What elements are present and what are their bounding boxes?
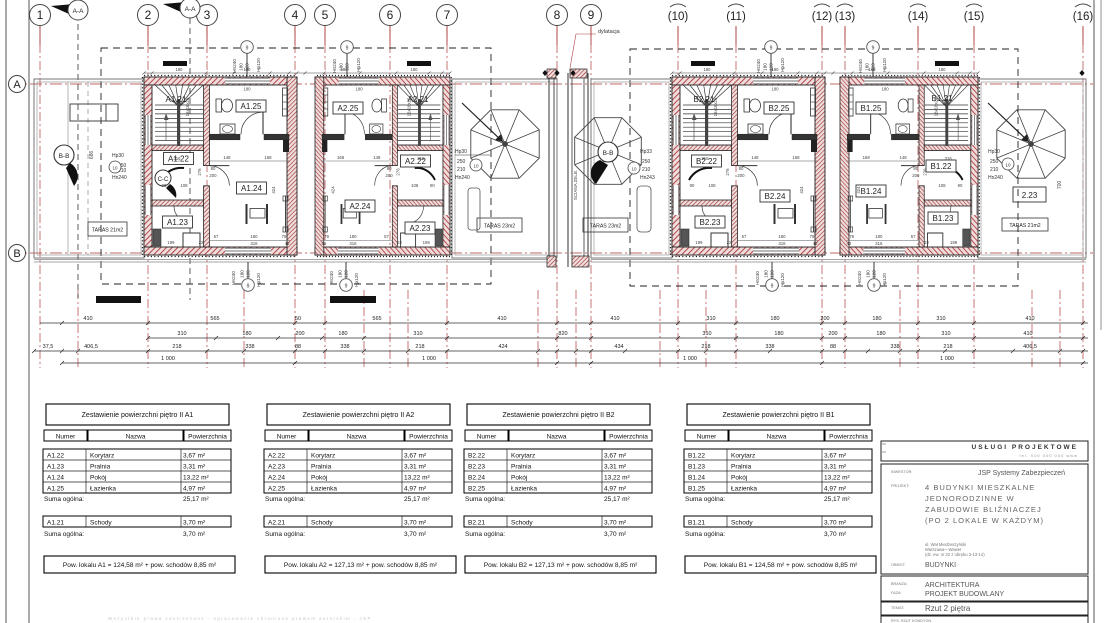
svg-text:180: 180 (338, 331, 347, 337)
svg-text:A1.22: A1.22 (47, 453, 64, 460)
svg-text:A1.24: A1.24 (47, 475, 64, 482)
svg-text:120: 120 (770, 270, 775, 278)
svg-text:Hp30: Hp30 (988, 149, 1000, 155)
svg-text:180: 180 (876, 331, 885, 337)
svg-text:42: 42 (321, 241, 326, 246)
svg-text:Numer: Numer (277, 434, 297, 441)
svg-text:50: 50 (295, 316, 301, 322)
svg-text:316: 316 (778, 241, 786, 246)
svg-text:(15): (15) (964, 11, 985, 23)
svg-text:Hp120: Hp120 (882, 58, 887, 72)
svg-text:B1.25: B1.25 (688, 486, 705, 493)
svg-text:A2.24: A2.24 (350, 202, 371, 211)
svg-text:88: 88 (295, 344, 301, 350)
svg-text:Nazwa: Nazwa (347, 434, 367, 441)
svg-text:(14): (14) (908, 11, 929, 23)
svg-text:Suma ogólna:: Suma ogólna: (265, 531, 305, 538)
svg-text:22: 22 (199, 240, 204, 245)
svg-text:180: 180 (240, 270, 245, 278)
svg-text:Pralnia: Pralnia (511, 464, 532, 471)
svg-text:Łazienka: Łazienka (511, 486, 537, 493)
svg-text:13,22 m²: 13,22 m² (404, 475, 430, 482)
svg-text:Hn240: Hn240 (455, 175, 470, 181)
svg-text:406,5: 406,5 (1023, 344, 1037, 350)
svg-text:210: 210 (457, 167, 466, 173)
svg-text:Suma ogólna:: Suma ogólna: (265, 496, 305, 503)
svg-text:Pow. lokalu B1 = 124,58 m² + p: Pow. lokalu B1 = 124,58 m² + pow. schodó… (704, 562, 858, 569)
svg-text:218: 218 (701, 344, 710, 350)
svg-text:Hn240: Hn240 (332, 59, 337, 73)
svg-text:180: 180 (866, 270, 871, 278)
svg-text:410: 410 (1023, 331, 1032, 337)
svg-text:A-A: A-A (185, 6, 197, 13)
svg-text:Hn240: Hn240 (112, 175, 127, 181)
svg-text:ARCHITEKTURA: ARCHITEKTURA (925, 582, 980, 589)
svg-text:120: 120 (872, 270, 877, 278)
svg-text:316: 316 (250, 241, 258, 246)
svg-text:Wszystkie prawa zastrzezone -: Wszystkie prawa zastrzezone - opracowani… (108, 616, 372, 621)
svg-text:Pokój: Pokój (511, 475, 527, 482)
svg-text:180: 180 (704, 67, 712, 72)
svg-text:9: 9 (246, 46, 249, 52)
svg-text:SCIANA ZELB.: SCIANA ZELB. (573, 170, 578, 200)
svg-text:3,67 m²: 3,67 m² (183, 453, 206, 460)
svg-text:57: 57 (214, 234, 219, 239)
svg-text:B2.25: B2.25 (468, 486, 485, 493)
svg-text:3,70 m²: 3,70 m² (183, 531, 206, 538)
svg-text:180: 180 (341, 67, 349, 72)
svg-text:316: 316 (875, 241, 883, 246)
svg-text:Powierzchnia: Powierzchnia (409, 434, 448, 441)
svg-text:TEMAT:: TEMAT: (891, 606, 904, 610)
svg-text:2.23: 2.23 (1022, 191, 1038, 200)
svg-text:Hp120: Hp120 (256, 58, 261, 72)
svg-text:ZABUDOWIE BLIŹNIACZEJ: ZABUDOWIE BLIŹNIACZEJ (925, 505, 1042, 514)
svg-text:316: 316 (417, 156, 425, 161)
svg-text:4 BUDYNKI MIESZKALNE: 4 BUDYNKI MIESZKALNE (925, 483, 1035, 492)
svg-text:TARAS 23m2: TARAS 23m2 (590, 224, 621, 230)
svg-text:Hn240: Hn240 (329, 271, 334, 285)
svg-text:148: 148 (223, 155, 231, 160)
svg-text:424: 424 (271, 186, 276, 194)
svg-text:7: 7 (444, 8, 451, 22)
svg-text:USŁUGI PROJEKTOWE: USŁUGI PROJEKTOWE (972, 444, 1078, 451)
svg-text:3,70 m²: 3,70 m² (404, 531, 427, 538)
svg-text:4,97 m²: 4,97 m² (404, 486, 427, 493)
svg-text:3,67 m²: 3,67 m² (604, 453, 627, 460)
svg-text:108: 108 (938, 183, 946, 188)
svg-text:310: 310 (941, 331, 950, 337)
svg-text:180: 180 (356, 87, 364, 92)
svg-text:3,31 m²: 3,31 m² (604, 464, 627, 471)
svg-text:Korytarz: Korytarz (311, 453, 335, 460)
svg-text:4: 4 (292, 8, 299, 22)
svg-text:A2.24: A2.24 (268, 475, 285, 482)
svg-text:180: 180 (338, 270, 343, 278)
svg-text:180: 180 (771, 87, 779, 92)
svg-text:Suma ogólna:: Suma ogólna: (685, 531, 725, 538)
svg-text:700: 700 (1057, 181, 1063, 190)
svg-text:3,70 m²: 3,70 m² (604, 531, 627, 538)
svg-text:A2.23: A2.23 (410, 224, 431, 233)
svg-text:13,22 m²: 13,22 m² (604, 475, 630, 482)
svg-text:A: A (13, 79, 21, 91)
svg-text:Schody: Schody (731, 520, 753, 527)
svg-text:B1.25: B1.25 (861, 104, 882, 113)
svg-text:Łazienka: Łazienka (90, 486, 116, 493)
svg-text:Rzut 2 piętra: Rzut 2 piętra (925, 604, 971, 613)
svg-text:INWESTOR:: INWESTOR: (891, 470, 912, 474)
svg-text:(13): (13) (835, 11, 856, 23)
svg-text:5: 5 (322, 8, 329, 22)
svg-text:JEDNORODZINNE W: JEDNORODZINNE W (925, 494, 1015, 503)
svg-text:200: 200 (209, 173, 217, 178)
svg-text:88: 88 (830, 344, 836, 350)
svg-text:424: 424 (856, 186, 861, 194)
svg-text:Pokój: Pokój (311, 475, 327, 482)
svg-text:A1.23: A1.23 (167, 218, 188, 227)
svg-text:410: 410 (610, 316, 619, 322)
svg-text:Numer: Numer (477, 434, 497, 441)
svg-text:B: B (13, 248, 20, 260)
svg-text:A1.25: A1.25 (241, 102, 262, 111)
svg-text:Hp120: Hp120 (882, 273, 887, 287)
svg-text:Hn240: Hn240 (857, 271, 862, 285)
svg-text:Hp120: Hp120 (780, 273, 785, 287)
svg-text:9: 9 (771, 284, 774, 290)
svg-text:90: 90 (690, 183, 695, 188)
svg-text:Pralnia: Pralnia (90, 464, 111, 471)
svg-text:Zestawienie powierzchni piętro: Zestawienie powierzchni piętro II A2 (303, 412, 415, 419)
svg-text:B1.21: B1.21 (688, 520, 705, 527)
svg-text:316: 316 (173, 156, 181, 161)
svg-text:B1.23: B1.23 (688, 464, 705, 471)
svg-text:316: 316 (349, 241, 357, 246)
svg-text:9: 9 (873, 284, 876, 290)
svg-text:3,31 m²: 3,31 m² (404, 464, 427, 471)
svg-text:108: 108 (411, 183, 419, 188)
svg-text:B2.25: B2.25 (769, 104, 790, 113)
svg-text:Suma ogólna:: Suma ogólna: (465, 496, 505, 503)
svg-text:200: 200 (386, 173, 394, 178)
svg-text:180: 180 (763, 63, 768, 71)
svg-text:199: 199 (167, 240, 175, 245)
svg-text:Hn240: Hn240 (231, 271, 236, 285)
svg-text:25,17 m²: 25,17 m² (824, 496, 850, 503)
svg-text:13,22 m²: 13,22 m² (824, 475, 850, 482)
svg-text:338: 338 (765, 344, 774, 350)
svg-text:3,31 m²: 3,31 m² (183, 464, 206, 471)
svg-text:TARAS 21m2: TARAS 21m2 (92, 228, 123, 234)
svg-text:79: 79 (324, 234, 329, 239)
svg-text:90: 90 (162, 183, 167, 188)
svg-text:210: 210 (990, 167, 999, 173)
svg-text:686: 686 (89, 151, 95, 160)
svg-text:4,97 m²: 4,97 m² (824, 486, 847, 493)
svg-text:B1.24: B1.24 (688, 475, 705, 482)
svg-text:1 000: 1 000 (940, 356, 954, 362)
svg-text:200: 200 (737, 173, 745, 178)
svg-text:B1.22: B1.22 (688, 453, 705, 460)
svg-text:10: 10 (631, 167, 637, 172)
svg-text:A2.23: A2.23 (268, 464, 285, 471)
svg-text:4,97 m²: 4,97 m² (604, 486, 627, 493)
svg-text:42: 42 (813, 241, 818, 246)
svg-text:(12): (12) (812, 11, 833, 23)
svg-text:A1.25: A1.25 (47, 486, 64, 493)
svg-text:218: 218 (943, 344, 952, 350)
svg-text:316: 316 (945, 156, 953, 161)
svg-text:210: 210 (642, 167, 651, 173)
svg-text:Hp120: Hp120 (256, 273, 261, 287)
svg-text:199: 199 (423, 240, 431, 245)
svg-text:338: 338 (890, 344, 899, 350)
svg-text:180: 180 (875, 234, 883, 239)
svg-text:200: 200 (820, 316, 829, 322)
svg-text:BUDYNKI: BUDYNKI (925, 562, 956, 569)
svg-text:79: 79 (282, 234, 287, 239)
svg-text:9: 9 (346, 46, 349, 52)
svg-text:B-B: B-B (59, 153, 70, 160)
svg-text:90: 90 (958, 183, 963, 188)
svg-text:42: 42 (285, 241, 290, 246)
svg-text:Numer: Numer (56, 434, 76, 441)
svg-text:9: 9 (345, 284, 348, 290)
svg-text:16x18x25: 16x18x25 (185, 97, 190, 116)
svg-text:410: 410 (83, 316, 92, 322)
svg-text:Suma ogólna:: Suma ogólna: (685, 496, 725, 503)
svg-text:Nazwa: Nazwa (126, 434, 146, 441)
svg-text:310: 310 (177, 331, 186, 337)
svg-text:9: 9 (247, 284, 250, 290)
svg-text:Zestawienie powierzchni piętro: Zestawienie powierzchni piętro II B2 (502, 412, 614, 419)
svg-text:Hp30: Hp30 (112, 153, 124, 159)
svg-text:tel. 000 000 000 www: tel. 000 000 000 www (1020, 453, 1078, 458)
svg-text:B1.24: B1.24 (861, 187, 882, 196)
svg-text:79: 79 (810, 234, 815, 239)
svg-text:Hn240: Hn240 (988, 175, 1003, 181)
svg-text:(11): (11) (726, 11, 746, 23)
svg-text:168: 168 (792, 155, 800, 160)
svg-text:148: 148 (751, 155, 759, 160)
svg-text:565: 565 (372, 316, 381, 322)
svg-text:B2.23: B2.23 (700, 218, 721, 227)
svg-text:Hn240: Hn240 (756, 59, 761, 73)
svg-text:Nazwa: Nazwa (767, 434, 787, 441)
svg-text:424: 424 (799, 186, 804, 194)
svg-text:168: 168 (264, 155, 272, 160)
svg-text:(10): (10) (668, 11, 689, 23)
svg-text:1 000: 1 000 (683, 356, 697, 362)
svg-text:A1.24: A1.24 (241, 184, 262, 193)
svg-text:4,97 m²: 4,97 m² (183, 486, 206, 493)
svg-text:180: 180 (242, 331, 251, 337)
svg-text:180: 180 (250, 234, 258, 239)
svg-text:Pow. lokalu A2 = 127,13 m² + p: Pow. lokalu A2 = 127,13 m² + pow. schodó… (284, 562, 438, 569)
svg-text:10: 10 (1005, 163, 1011, 168)
svg-text:310: 310 (702, 331, 711, 337)
svg-text:B1.22: B1.22 (931, 162, 952, 171)
svg-text:37,5: 37,5 (43, 344, 54, 350)
svg-text:410: 410 (497, 316, 506, 322)
svg-text:6: 6 (387, 8, 394, 22)
svg-text:310: 310 (706, 316, 715, 322)
svg-text:3,70 m²: 3,70 m² (183, 520, 206, 527)
svg-text:B1.23: B1.23 (933, 214, 954, 223)
svg-text:250: 250 (990, 159, 999, 165)
svg-text:338: 338 (245, 344, 254, 350)
svg-text:180: 180 (774, 331, 783, 337)
svg-text:Powierzchnia: Powierzchnia (829, 434, 868, 441)
svg-text:Łazienka: Łazienka (731, 486, 757, 493)
svg-text:9: 9 (588, 8, 595, 22)
svg-text:Hp120: Hp120 (780, 58, 785, 72)
svg-text:80: 80 (739, 166, 744, 171)
svg-text:434: 434 (614, 344, 623, 350)
svg-text:Hn240: Hn240 (755, 271, 760, 285)
svg-text:Hn243: Hn243 (640, 175, 655, 181)
svg-text:200: 200 (828, 331, 837, 337)
svg-text:16x18x25: 16x18x25 (933, 97, 938, 116)
svg-text:316: 316 (701, 156, 709, 161)
svg-text:Powierzchnia: Powierzchnia (609, 434, 648, 441)
svg-text:Korytarz: Korytarz (90, 453, 114, 460)
svg-text:A1.21: A1.21 (166, 95, 187, 104)
svg-text:1: 1 (37, 8, 44, 22)
svg-text:Hp33: Hp33 (640, 149, 652, 155)
svg-text:PROJEKT BUDOWLANY: PROJEKT BUDOWLANY (925, 591, 1005, 598)
svg-text:276: 276 (197, 168, 202, 176)
svg-text:180: 180 (349, 234, 357, 239)
svg-text:108: 108 (180, 183, 188, 188)
svg-text:Hn240: Hn240 (232, 59, 237, 73)
svg-text:Suma ogólna:: Suma ogólna: (44, 531, 84, 538)
svg-text:3,67 m²: 3,67 m² (404, 453, 427, 460)
svg-text:820: 820 (558, 331, 567, 337)
svg-text:Suma ogólna:: Suma ogólna: (44, 496, 84, 503)
svg-text:276: 276 (725, 168, 730, 176)
svg-text:OBIEKT:: OBIEKT: (891, 563, 906, 567)
svg-text:148: 148 (900, 155, 908, 160)
svg-text:Zestawienie powierzchni piętro: Zestawienie powierzchni piętro II A1 (82, 412, 194, 419)
svg-text:B2.22: B2.22 (468, 453, 485, 460)
svg-text:2: 2 (145, 8, 152, 22)
svg-text:42: 42 (847, 241, 852, 246)
svg-text:Pow. lokalu B2 = 127,13 m² + p: Pow. lokalu B2 = 127,13 m² + pow. schodó… (484, 562, 638, 569)
svg-text:8: 8 (554, 8, 561, 22)
svg-text:57: 57 (384, 234, 389, 239)
svg-text:310: 310 (936, 316, 945, 322)
svg-text:Hn240: Hn240 (858, 59, 863, 73)
svg-text:Pokój: Pokój (90, 475, 106, 482)
svg-text:Nazwa: Nazwa (547, 434, 567, 441)
svg-text:90: 90 (430, 183, 435, 188)
svg-text:Pokój: Pokój (731, 475, 747, 482)
svg-text:3: 3 (204, 8, 211, 22)
svg-text:180: 180 (939, 67, 947, 72)
svg-text:A2.22: A2.22 (268, 453, 285, 460)
svg-text:22: 22 (727, 240, 732, 245)
svg-text:565: 565 (210, 316, 219, 322)
svg-text:A-A: A-A (73, 8, 85, 15)
svg-text:13,22 m²: 13,22 m² (183, 475, 209, 482)
svg-text:FAZA:: FAZA: (891, 591, 902, 595)
svg-text:Korytarz: Korytarz (731, 453, 755, 460)
svg-text:10: 10 (473, 164, 479, 169)
svg-text:200: 200 (912, 173, 920, 178)
svg-text:Suma ogólna:: Suma ogólna: (465, 531, 505, 538)
svg-text:dylatacja: dylatacja (598, 29, 621, 35)
svg-text:JSP Systemy Zabezpieczeń: JSP Systemy Zabezpieczeń (978, 470, 1065, 477)
svg-text:180: 180 (770, 316, 779, 322)
svg-text:57: 57 (742, 234, 747, 239)
svg-text:A2.25: A2.25 (268, 486, 285, 493)
svg-text:B2.21: B2.21 (468, 520, 485, 527)
svg-text:B2.21: B2.21 (694, 95, 715, 104)
svg-text:A1.23: A1.23 (47, 464, 64, 471)
svg-text:276: 276 (923, 168, 928, 176)
svg-text:180: 180 (869, 67, 877, 72)
svg-text:25,17 m²: 25,17 m² (404, 496, 430, 503)
svg-text:120: 120 (344, 270, 349, 278)
svg-text:406,5: 406,5 (84, 344, 98, 350)
svg-text:218: 218 (172, 344, 181, 350)
svg-text:310: 310 (413, 331, 422, 337)
svg-text:22: 22 (397, 240, 402, 245)
svg-text:Hp120: Hp120 (354, 273, 359, 287)
svg-text:(dz. ew. nr 22 z obrębu 3-13-1: (dz. ew. nr 22 z obrębu 3-13-14) (925, 552, 985, 557)
svg-text:80: 80 (913, 166, 918, 171)
svg-text:B2.24: B2.24 (468, 475, 485, 482)
svg-text:1 000: 1 000 (422, 356, 436, 362)
svg-text:Hp30: Hp30 (455, 149, 467, 155)
svg-text:168: 168 (337, 155, 345, 160)
svg-text:80: 80 (387, 166, 392, 171)
svg-text:TARAS 21m2: TARAS 21m2 (1009, 223, 1040, 229)
svg-text:RYS. RZUT KONDYGN.: RYS. RZUT KONDYGN. (891, 619, 932, 623)
svg-text:424: 424 (330, 186, 335, 194)
svg-text:Pow. lokalu A1 = 124,58 m² + p: Pow. lokalu A1 = 124,58 m² + pow. schodó… (63, 562, 217, 569)
svg-text:A1.21: A1.21 (47, 520, 64, 527)
svg-text:180: 180 (772, 67, 780, 72)
svg-text:180: 180 (243, 87, 251, 92)
svg-text:B2.23: B2.23 (468, 464, 485, 471)
svg-text:TARAS 23m2: TARAS 23m2 (484, 224, 515, 230)
svg-text:168: 168 (863, 155, 871, 160)
svg-text:276: 276 (396, 168, 401, 176)
svg-text:B2.24: B2.24 (765, 192, 786, 201)
svg-text:PROJEKT:: PROJEKT: (891, 484, 909, 488)
svg-text:Powierzchnia: Powierzchnia (188, 434, 227, 441)
svg-text:9: 9 (872, 46, 875, 52)
svg-text:180: 180 (872, 316, 881, 322)
svg-text:1 000: 1 000 (161, 356, 175, 362)
svg-text:3,70 m²: 3,70 m² (824, 531, 847, 538)
svg-text:Numer: Numer (697, 434, 717, 441)
svg-text:180: 180 (778, 234, 786, 239)
svg-text:Pralnia: Pralnia (731, 464, 752, 471)
svg-text:218: 218 (415, 344, 424, 350)
svg-text:250: 250 (457, 159, 466, 165)
svg-text:BRANŻA:: BRANŻA: (891, 581, 907, 586)
svg-text:338: 338 (340, 344, 349, 350)
svg-text:Pralnia: Pralnia (311, 464, 332, 471)
svg-text:22: 22 (924, 240, 929, 245)
svg-text:250: 250 (642, 159, 651, 165)
svg-text:16x18x25: 16x18x25 (406, 97, 411, 116)
svg-text:180: 180 (764, 270, 769, 278)
svg-text:199: 199 (695, 240, 703, 245)
